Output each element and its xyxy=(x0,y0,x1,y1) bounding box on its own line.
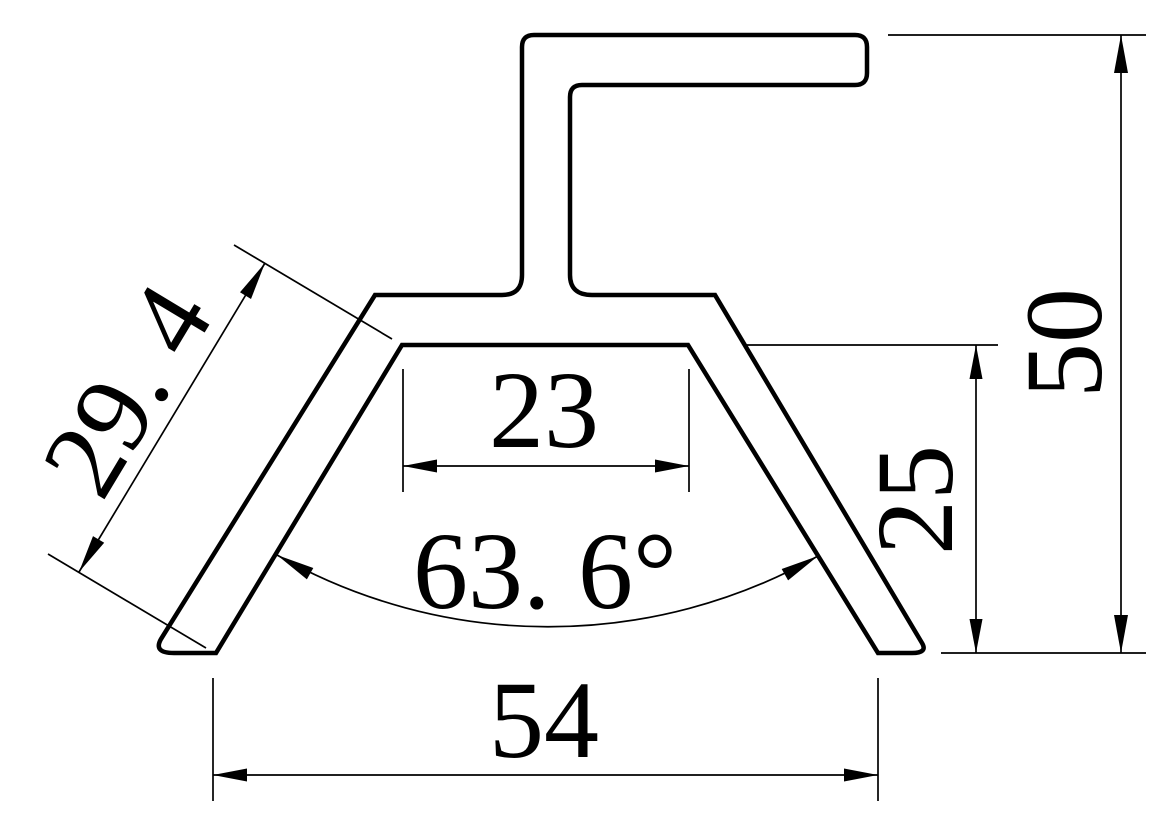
dim-23-arrow-left xyxy=(403,460,437,473)
dim-25-arrow-top xyxy=(970,345,983,379)
dim-25-arrow-bottom xyxy=(970,619,983,653)
dim-294-label: 29. 4 xyxy=(18,264,236,515)
dim-leg-length: 29. 4 xyxy=(18,245,392,648)
dim-54-arrow-right xyxy=(844,769,878,782)
dim-50-arrow-top xyxy=(1114,35,1128,73)
dim-294-arrow-top xyxy=(240,263,265,299)
dim-294-arrow-bottom xyxy=(79,536,104,572)
dim-inner-top-width: 23 xyxy=(403,349,689,492)
dim-50-label: 50 xyxy=(1003,288,1125,398)
dim-inner-bottom-width: 54 xyxy=(213,659,878,801)
dim-23-arrow-right xyxy=(655,460,689,473)
dim-23-label: 23 xyxy=(489,349,599,471)
dim-angle-label: 63. 6° xyxy=(413,510,677,632)
technical-drawing: 23 54 25 50 xyxy=(0,0,1176,836)
dim-50-arrow-bottom xyxy=(1114,615,1128,653)
dim-294-extension-line-top xyxy=(234,245,392,339)
dim-angle-arrow-right xyxy=(782,556,818,580)
dim-25-label: 25 xyxy=(854,445,976,555)
dim-overall-height: 50 xyxy=(888,35,1146,653)
drawing-canvas: 23 54 25 50 xyxy=(0,0,1176,836)
dim-54-arrow-left xyxy=(213,769,247,782)
dim-leg-angle: 63. 6° xyxy=(277,510,818,632)
dim-angle-arrow-left xyxy=(277,555,313,579)
dim-54-label: 54 xyxy=(489,659,599,781)
